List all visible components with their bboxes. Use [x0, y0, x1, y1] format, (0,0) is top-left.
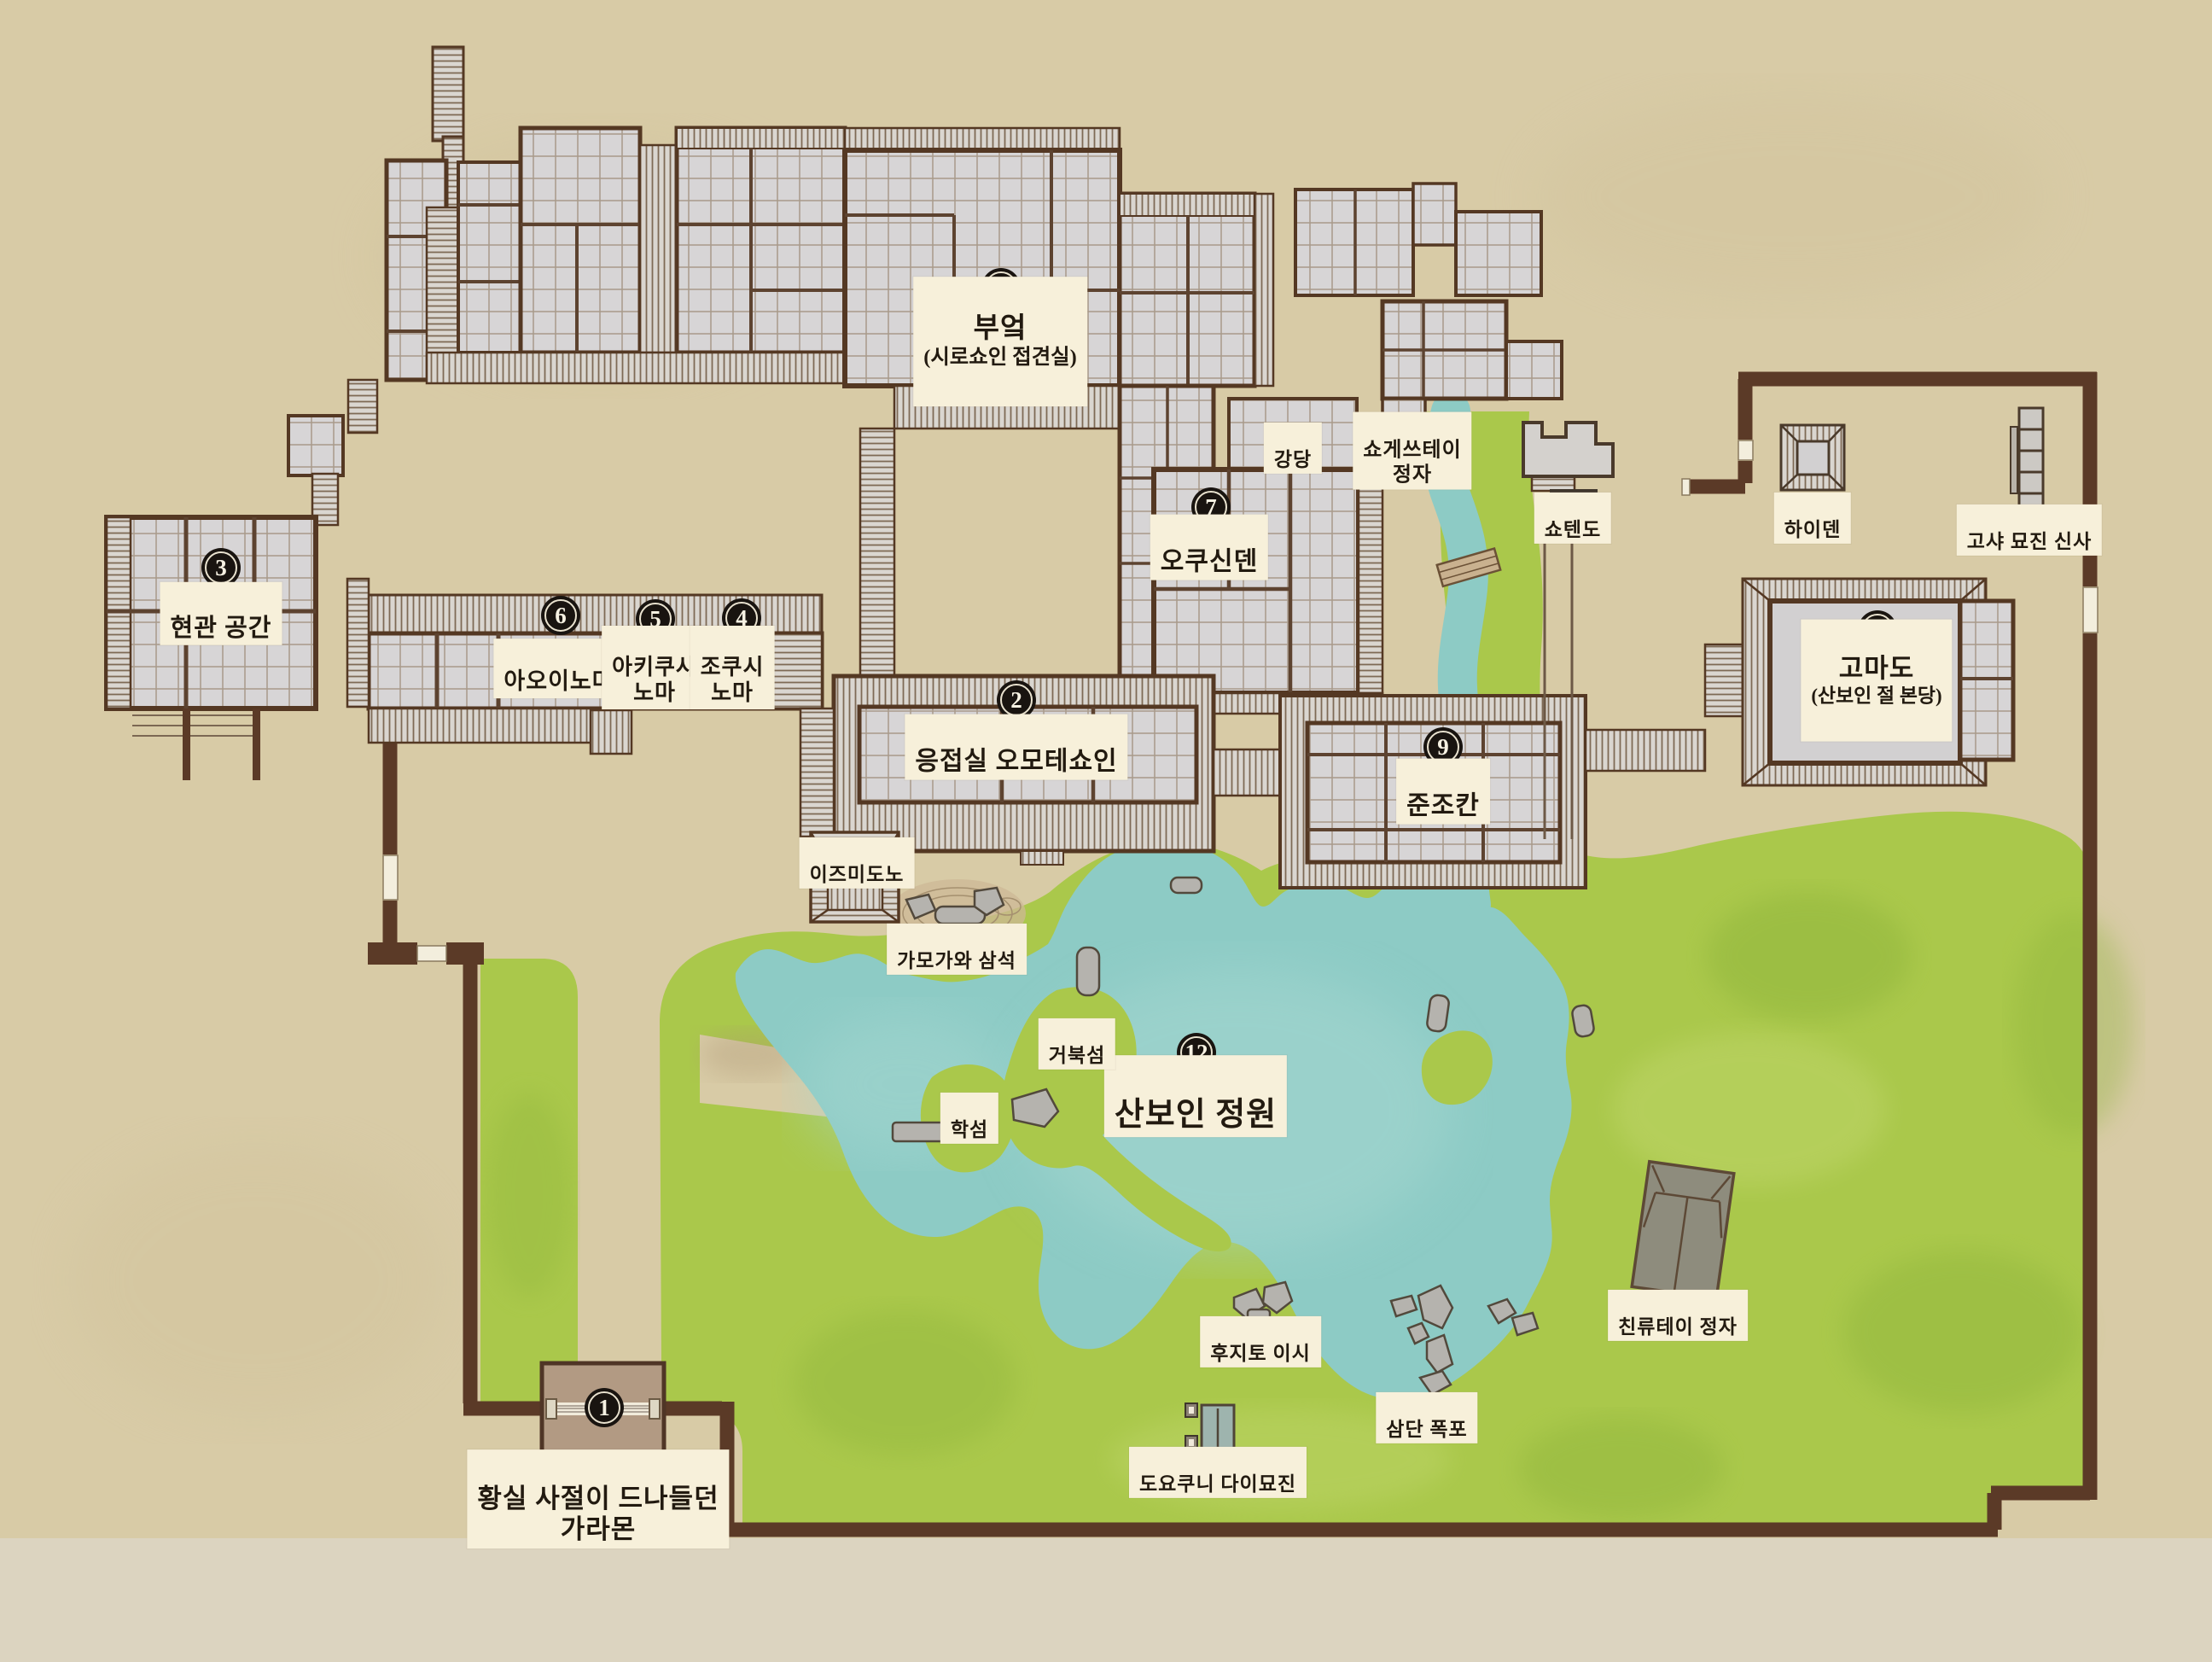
temple-map: 1 2 3 4 5 6 7 8 9 10 12 부엌(시로쇼인 접견실) 현관 …	[0, 0, 2212, 1662]
label-fujito: 후지토 이시	[1200, 1316, 1321, 1368]
label-karamon: 황실 사절이 드나들던 가라몬	[467, 1449, 729, 1548]
label-waterfall: 삼단 폭포	[1376, 1392, 1477, 1443]
stone-bridge-west	[893, 1123, 946, 1141]
label-garden: 산보인 정원	[1104, 1055, 1287, 1137]
label-izumidono: 이즈미도노	[800, 837, 915, 889]
label-genkan: 현관 공간	[160, 582, 282, 645]
badge-1: 1	[585, 1388, 624, 1427]
label-chinryutei: 친류테이 정자	[1608, 1290, 1748, 1341]
label-komado: 고마도(산보인 절 본당)	[1801, 620, 1952, 742]
label-junjokan: 준조칸	[1396, 759, 1490, 825]
temple-map-graphic	[0, 0, 2212, 1662]
stepping-stone	[1171, 878, 1202, 893]
label-turtle-island: 거북섬	[1039, 1018, 1115, 1070]
label-gosha: 고샤 묘진 신사	[1957, 504, 2102, 556]
stepping-stone	[1426, 994, 1450, 1033]
label-okushinden: 오쿠신덴	[1150, 515, 1268, 580]
building-haiden	[1781, 425, 1844, 490]
label-crane-island: 학섬	[940, 1093, 998, 1144]
label-kitchen: 부엌(시로쇼인 접견실)	[913, 277, 1087, 406]
label-shotendo: 쇼텐도	[1534, 493, 1611, 544]
label-kamogawa: 가모가와 삼석	[887, 924, 1027, 975]
badge-6: 6	[541, 596, 580, 635]
label-toyokuni: 도요쿠니 다이묘진	[1129, 1447, 1307, 1498]
outside-south-strip	[0, 1538, 2212, 1662]
label-omoteshoin: 응접실 오모테쇼인	[905, 714, 1127, 780]
stepping-stone	[1077, 948, 1099, 995]
label-haiden: 하이덴	[1774, 493, 1851, 544]
label-chokushi: 조쿠시 노마	[690, 626, 775, 709]
building-chinryutei	[1632, 1162, 1734, 1298]
label-shogetsutei: 쇼게쓰테이 정자	[1353, 412, 1471, 490]
label-kodo: 강당	[1264, 423, 1322, 474]
